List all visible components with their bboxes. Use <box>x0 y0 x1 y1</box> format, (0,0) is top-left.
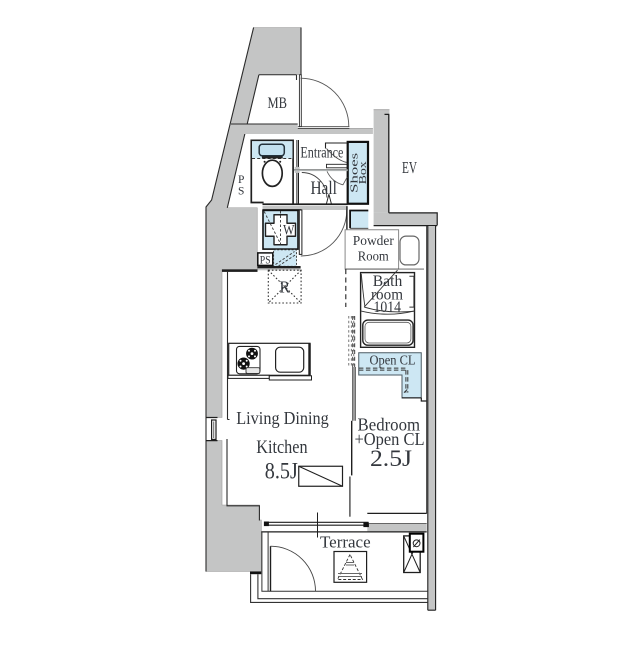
svg-text:PS: PS <box>260 254 271 266</box>
svg-text:Powder: Powder <box>353 233 394 248</box>
svg-text:S: S <box>238 186 244 198</box>
svg-text:Room: Room <box>358 249 389 264</box>
svg-text:Living Dining: Living Dining <box>236 408 329 428</box>
svg-text:8.5J: 8.5J <box>265 459 298 484</box>
svg-text:R: R <box>280 278 291 297</box>
svg-text:P: P <box>238 174 244 186</box>
svg-text:MB: MB <box>268 95 288 112</box>
svg-text:Open CL: Open CL <box>370 353 416 368</box>
svg-text:1014: 1014 <box>373 299 401 316</box>
svg-text:Box: Box <box>357 161 369 185</box>
svg-text:Kitchen: Kitchen <box>256 438 307 458</box>
svg-text:2.5J: 2.5J <box>370 446 412 471</box>
svg-text:EV: EV <box>402 158 417 177</box>
svg-text:W: W <box>283 223 295 239</box>
svg-text:Entrance: Entrance <box>300 144 343 161</box>
svg-text:Terrace: Terrace <box>320 533 371 552</box>
svg-text:Hall: Hall <box>310 179 337 199</box>
